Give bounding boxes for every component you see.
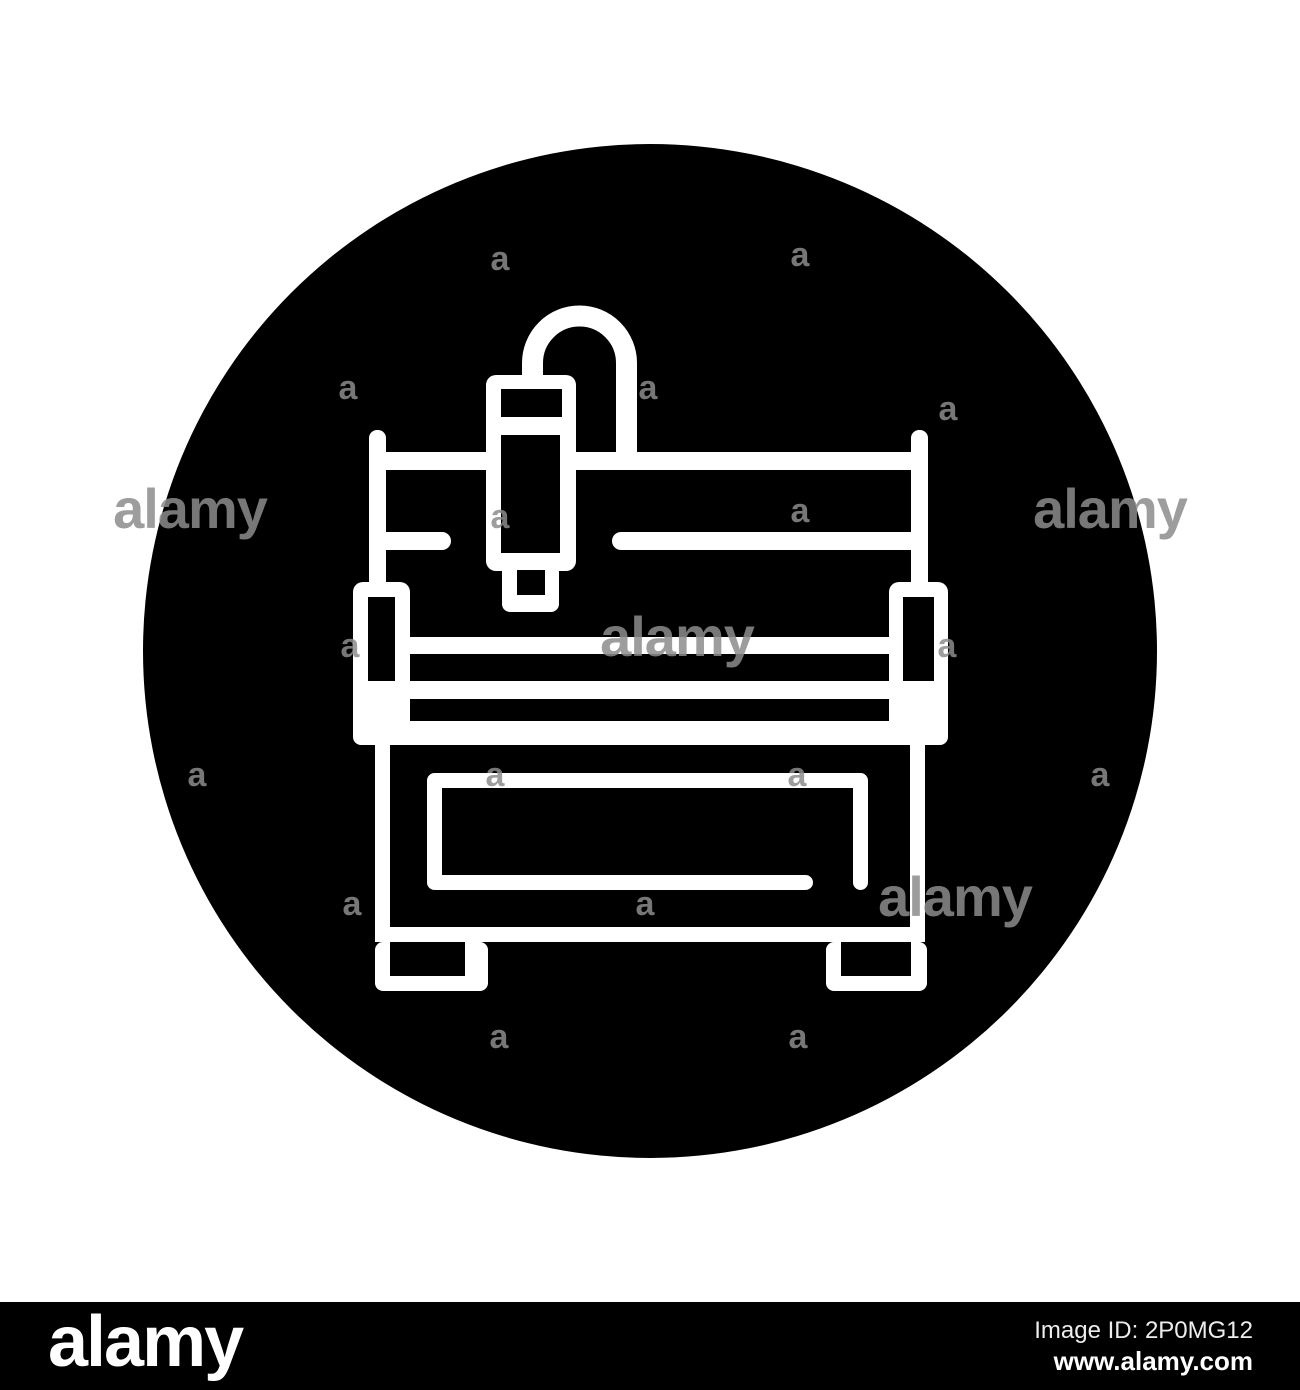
- spindle-upper-window: [501, 389, 562, 417]
- image-id-label: Image ID: 2P0MG12: [1034, 1319, 1253, 1343]
- watermark-letter: a: [791, 492, 811, 530]
- alamy-logo: alamy: [48, 1306, 242, 1378]
- watermark-word: alamy: [878, 865, 1033, 928]
- table-front-edge: [353, 721, 948, 745]
- stock-image-page: aaaaaalamyaaalamyaalamyaaaaaaaalamyaa al…: [0, 0, 1300, 1390]
- guide-line-left: [377, 532, 451, 550]
- watermark-letter: a: [486, 756, 506, 794]
- bed-rail-lower: [370, 681, 934, 699]
- credit-texts: Image ID: 2P0MG12 www.alamy.com: [1034, 1319, 1253, 1374]
- spindle-lower-window: [501, 435, 560, 553]
- watermark-letter: a: [939, 390, 959, 428]
- guide-line-right: [612, 532, 922, 550]
- watermark-letter: a: [491, 240, 511, 278]
- credit-bar: alamy Image ID: 2P0MG12 www.alamy.com: [0, 1302, 1300, 1390]
- base-left-wall: [375, 745, 390, 942]
- base-bottom-edge: [375, 927, 925, 942]
- watermark-letter: a: [491, 498, 511, 536]
- watermark-letter: a: [339, 369, 359, 407]
- right-foot-window: [841, 942, 911, 976]
- watermark-letter: a: [788, 756, 808, 794]
- watermark-letter: a: [1091, 756, 1111, 794]
- alamy-url: www.alamy.com: [1054, 1348, 1253, 1374]
- watermark-letter: a: [188, 756, 208, 794]
- cnc-machine-icon-graphic: aaaaaalamyaaalamyaalamyaaaaaaaalamyaa: [0, 0, 1300, 1390]
- watermark-letter: a: [490, 1018, 510, 1056]
- watermark-letter: a: [639, 369, 659, 407]
- watermark-letter: a: [789, 1018, 809, 1056]
- watermark-word: alamy: [113, 477, 268, 540]
- tool-window: [517, 570, 545, 595]
- watermark-letter: a: [341, 627, 361, 665]
- watermark-letter: a: [343, 885, 363, 923]
- left-foot-window: [390, 942, 465, 976]
- left-block-window: [368, 597, 395, 681]
- watermark-letter: a: [636, 885, 656, 923]
- watermark-letter: a: [938, 627, 958, 665]
- right-block-window: [903, 597, 934, 681]
- watermark-word: alamy: [1033, 477, 1188, 540]
- watermark-letter: a: [791, 236, 811, 274]
- watermark-word: alamy: [600, 605, 755, 668]
- gantry-top-rail: [377, 452, 921, 470]
